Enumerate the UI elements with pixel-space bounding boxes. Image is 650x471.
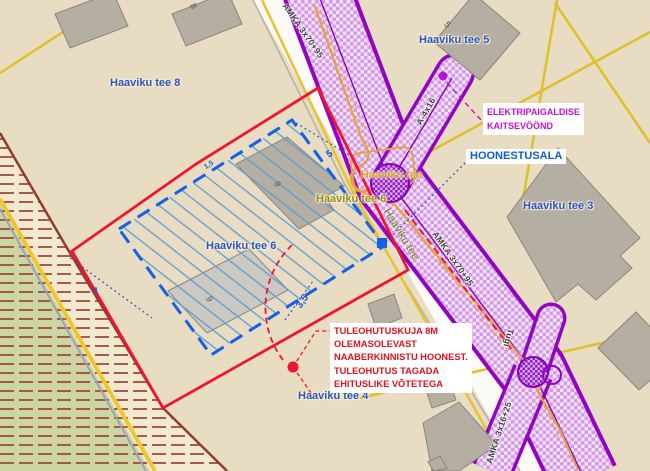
parcel-label-haaviku-tee-6-road: Haaviku tee 6 <box>316 194 386 205</box>
note-fire-line5: EHITUSLIKE VÕTETEGA <box>334 378 468 391</box>
parcel-label-haaviku-tee-3: Haaviku tee 3 <box>523 201 593 212</box>
street-label-intersection: Haaviku tee <box>361 170 422 181</box>
note-fire-line4: TULEOHUTUS TAGADA <box>334 365 468 378</box>
parcel-label-haaviku-tee-6: Haaviku tee 6 <box>206 241 276 252</box>
note-fire-safety: TULEOHUTUSKUJA 8M OLEMASOLEVAST NAABERKI… <box>330 323 472 393</box>
note-fire-line2: OLEMASOLEVAST <box>334 338 468 351</box>
note-electrical-protection-zone: ELEKTRIPAIGALDISE KAITSEVÖÖND <box>483 103 584 135</box>
note-hoonestusala: HOONESTUSALA <box>466 149 566 164</box>
note-fire-line1: TULEOHUTUSKUJA 8M <box>334 325 468 338</box>
detail-plan-map[interactable]: Haaviku tee 8 Haaviku tee 5 Haaviku tee … <box>0 0 650 471</box>
hoonestusala-marker <box>377 238 387 248</box>
note-fire-line3: NAABERKINNISTU HOONEST. <box>334 351 468 364</box>
parcel-label-haaviku-tee-8: Haaviku tee 8 <box>110 78 180 89</box>
parcel-label-haaviku-tee-5: Haaviku tee 5 <box>419 35 489 46</box>
note-electrical-line2: KAITSEVÖÖND <box>487 119 580 133</box>
note-electrical-line1: ELEKTRIPAIGALDISE <box>487 105 580 119</box>
